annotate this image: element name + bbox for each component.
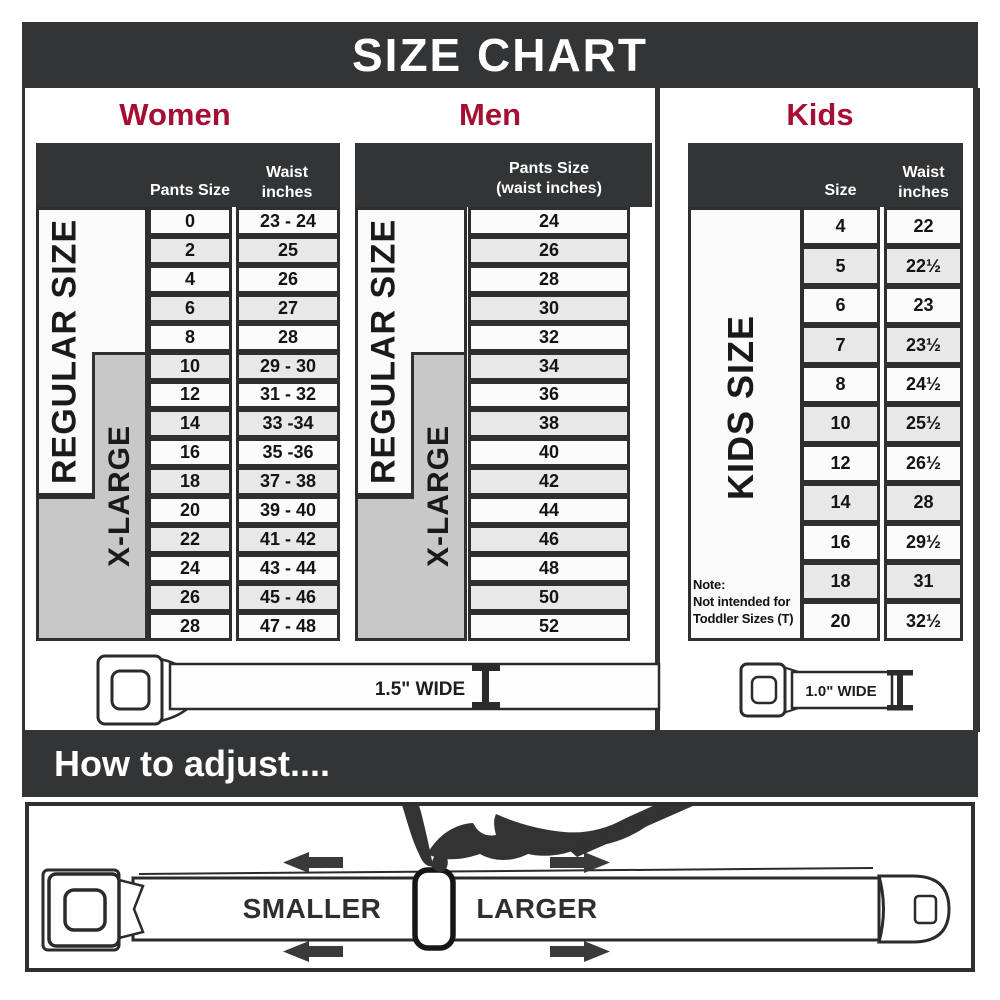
table-cell: 8 <box>801 365 880 404</box>
kids-belt-illustration: 1.0" WIDE <box>735 650 935 722</box>
table-cell: 28 <box>884 483 963 522</box>
table-cell: 7 <box>801 325 880 364</box>
table-row: 1025½ <box>801 404 963 443</box>
table-cell: 32 <box>468 323 630 352</box>
table-cell: 28 <box>236 323 340 352</box>
hand-pinch-icon <box>401 806 697 872</box>
table-cell: 33 -34 <box>236 409 340 438</box>
table-row: 40 <box>468 438 630 467</box>
women-regular-size-label: REGULAR SIZE <box>36 207 94 496</box>
table-row: 46 <box>468 525 630 554</box>
table-cell: 26 <box>468 236 630 265</box>
table-row: 2241 - 42 <box>148 525 340 554</box>
table-row: 1226½ <box>801 444 963 483</box>
table-row: 2032½ <box>801 601 963 640</box>
table-row: 824½ <box>801 365 963 404</box>
table-cell: 6 <box>148 294 232 323</box>
table-cell: 22½ <box>884 246 963 285</box>
kids-table-rows: 422522½623723½824½1025½1226½14281629½183… <box>801 207 963 641</box>
table-cell: 34 <box>468 352 630 381</box>
table-row: 34 <box>468 352 630 381</box>
table-cell: 23 - 24 <box>236 207 340 236</box>
larger-label: LARGER <box>476 893 597 924</box>
table-cell: 12 <box>801 444 880 483</box>
size-chart-page: SIZE CHART Women Men Kids Pants Size Wai… <box>0 0 1000 1000</box>
table-cell: 24½ <box>884 365 963 404</box>
table-row: 723½ <box>801 325 963 364</box>
kids-size-label: KIDS SIZE <box>688 207 794 607</box>
table-row: 422 <box>801 207 963 246</box>
table-cell: 14 <box>148 409 232 438</box>
table-cell: 47 - 48 <box>236 612 340 641</box>
men-table-rows: 242628303234363840424446485052 <box>468 207 630 641</box>
table-cell: 38 <box>468 409 630 438</box>
table-row: 30 <box>468 294 630 323</box>
table-row: 1629½ <box>801 523 963 562</box>
table-cell: 26 <box>236 265 340 294</box>
kids-note: Note: Not intended for Toddler Sizes (T) <box>693 577 801 628</box>
table-cell: 48 <box>468 554 630 583</box>
women-table-rows: 023 - 242254266278281029 - 301231 - 3214… <box>148 207 340 641</box>
table-row: 1029 - 30 <box>148 352 340 381</box>
table-cell: 41 - 42 <box>236 525 340 554</box>
belt-adjuster <box>415 870 453 948</box>
table-cell: 36 <box>468 381 630 410</box>
adjust-belt-illustration: SMALLER LARGER <box>29 806 971 968</box>
table-row: 627 <box>148 294 340 323</box>
table-cell: 28 <box>148 612 232 641</box>
table-row: 52 <box>468 612 630 641</box>
table-row: 623 <box>801 286 963 325</box>
table-row: 225 <box>148 236 340 265</box>
table-cell: 2 <box>148 236 232 265</box>
table-cell: 35 -36 <box>236 438 340 467</box>
table-row: 32 <box>468 323 630 352</box>
table-cell: 25 <box>236 236 340 265</box>
table-cell: 29½ <box>884 523 963 562</box>
table-row: 28 <box>468 265 630 294</box>
kids-header: Kids <box>700 92 940 138</box>
table-cell: 43 - 44 <box>236 554 340 583</box>
table-row: 2645 - 46 <box>148 583 340 612</box>
arrow-right-bottom-icon <box>550 941 610 962</box>
table-cell: 10 <box>148 352 232 381</box>
table-cell: 24 <box>148 554 232 583</box>
table-cell: 22 <box>148 525 232 554</box>
table-cell: 5 <box>801 246 880 285</box>
men-header: Men <box>375 92 605 138</box>
table-cell: 16 <box>148 438 232 467</box>
table-row: 44 <box>468 496 630 525</box>
table-cell: 31 - 32 <box>236 381 340 410</box>
adjust-section-bar: How to adjust.... <box>22 730 978 797</box>
table-cell: 23 <box>884 286 963 325</box>
table-row: 50 <box>468 583 630 612</box>
table-row: 522½ <box>801 246 963 285</box>
table-row: 2039 - 40 <box>148 496 340 525</box>
table-cell: 4 <box>801 207 880 246</box>
table-row: 1837 - 38 <box>148 467 340 496</box>
table-row: 26 <box>468 236 630 265</box>
table-cell: 45 - 46 <box>236 583 340 612</box>
table-cell: 16 <box>801 523 880 562</box>
table-cell: 40 <box>468 438 630 467</box>
arrow-left-bottom-icon <box>283 941 343 962</box>
table-cell: 25½ <box>884 404 963 443</box>
table-row: 1231 - 32 <box>148 381 340 410</box>
men-regular-size-label: REGULAR SIZE <box>355 207 413 496</box>
table-row: 1428 <box>801 483 963 522</box>
kids-col-size: Size <box>801 143 880 207</box>
table-cell: 23½ <box>884 325 963 364</box>
table-row: 828 <box>148 323 340 352</box>
title-bar: SIZE CHART <box>22 22 978 88</box>
table-row: 023 - 24 <box>148 207 340 236</box>
women-col-pants-size: Pants Size <box>148 143 232 207</box>
table-row: 2847 - 48 <box>148 612 340 641</box>
table-cell: 14 <box>801 483 880 522</box>
table-cell: 30 <box>468 294 630 323</box>
table-cell: 28 <box>468 265 630 294</box>
table-cell: 39 - 40 <box>236 496 340 525</box>
table-row: 42 <box>468 467 630 496</box>
table-cell: 32½ <box>884 601 963 640</box>
table-cell: 27 <box>236 294 340 323</box>
table-row: 24 <box>468 207 630 236</box>
table-cell: 20 <box>801 601 880 640</box>
table-row: 1831 <box>801 562 963 601</box>
men-col-pants-size: Pants Size (waist inches) <box>468 143 630 207</box>
table-cell: 8 <box>148 323 232 352</box>
section-divider <box>655 88 660 732</box>
women-header: Women <box>60 92 290 138</box>
table-row: 1635 -36 <box>148 438 340 467</box>
left-border <box>22 88 25 732</box>
adult-belt-illustration: 1.5" WIDE <box>90 650 665 732</box>
table-cell: 29 - 30 <box>236 352 340 381</box>
smaller-label: SMALLER <box>243 893 382 924</box>
adult-belt-width-label: 1.5" WIDE <box>375 679 465 700</box>
women-col-waist: Waist inches <box>234 143 340 207</box>
kids-col-waist: Waist inches <box>884 143 963 207</box>
arrow-left-top-icon <box>283 852 343 873</box>
table-cell: 37 - 38 <box>236 467 340 496</box>
table-row: 38 <box>468 409 630 438</box>
table-cell: 20 <box>148 496 232 525</box>
table-row: 2443 - 44 <box>148 554 340 583</box>
table-cell: 46 <box>468 525 630 554</box>
table-cell: 26½ <box>884 444 963 483</box>
women-xlarge-label: X-LARGE <box>92 352 148 641</box>
table-cell: 4 <box>148 265 232 294</box>
table-cell: 10 <box>801 404 880 443</box>
table-cell: 31 <box>884 562 963 601</box>
table-cell: 24 <box>468 207 630 236</box>
table-cell: 0 <box>148 207 232 236</box>
table-cell: 44 <box>468 496 630 525</box>
table-row: 48 <box>468 554 630 583</box>
table-cell: 42 <box>468 467 630 496</box>
table-row: 1433 -34 <box>148 409 340 438</box>
right-border <box>973 88 980 732</box>
kids-belt-width-label: 1.0" WIDE <box>805 683 876 700</box>
men-xlarge-label: X-LARGE <box>411 352 467 641</box>
table-cell: 6 <box>801 286 880 325</box>
table-cell: 18 <box>801 562 880 601</box>
adjust-illustration-box: SMALLER LARGER <box>25 802 975 972</box>
table-cell: 22 <box>884 207 963 246</box>
table-cell: 26 <box>148 583 232 612</box>
adjust-heading: How to adjust.... <box>54 743 330 785</box>
table-cell: 50 <box>468 583 630 612</box>
table-row: 36 <box>468 381 630 410</box>
table-cell: 12 <box>148 381 232 410</box>
page-title: SIZE CHART <box>352 28 648 82</box>
table-cell: 18 <box>148 467 232 496</box>
table-row: 426 <box>148 265 340 294</box>
table-cell: 52 <box>468 612 630 641</box>
